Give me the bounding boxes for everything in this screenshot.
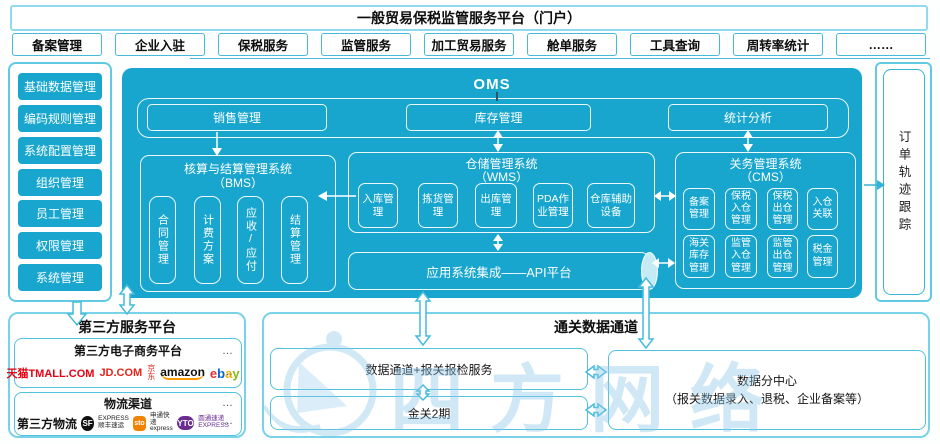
sidebar-item-organization[interactable]: 组织管理: [18, 169, 102, 196]
order-tracking-label: 订单轨迹跟踪: [883, 69, 925, 295]
bms-box: 核算与结算管理系统 （BMS） 合同管理 计费方案 应收/应付 结算管理: [140, 155, 336, 292]
menu-item-enterprise-entry[interactable]: 企业入驻: [115, 33, 205, 56]
node-sales-mgmt: 销售管理: [147, 104, 327, 131]
admin-sidebar: 基础数据管理 编码规则管理 系统配置管理 组织管理 员工管理 权限管理 系统管理: [8, 62, 112, 302]
node-pda-operation: PDA作业管理: [533, 183, 573, 228]
bms-title-line1: 核算与结算管理系统: [141, 162, 335, 176]
tmall-logo: 天猫TMALL.COM: [6, 365, 94, 381]
node-settlement-mgmt: 结算管理: [281, 196, 308, 284]
node-inventory-mgmt: 库存管理: [406, 104, 591, 131]
node-statistics-analysis: 统计分析: [668, 104, 828, 131]
menu-item-turnover-stats[interactable]: 周转率统计: [733, 33, 823, 56]
third-party-panel: 第三方服务平台 第三方电子商务平台 … 天猫TMALL.COM JD.COM 京…: [8, 312, 246, 438]
menu-item-processing-trade[interactable]: 加工贸易服务: [424, 33, 514, 56]
ecommerce-more-dots: …: [222, 345, 234, 357]
portal-title: 一般贸易保税监管服务平台（门户）: [357, 8, 581, 28]
sidebar-item-employee[interactable]: 员工管理: [18, 200, 102, 227]
data-subcenter-box: 数据分中心 （报关数据录入、退税、企业备案等）: [608, 350, 926, 430]
cms-title-line2: （CMS）: [676, 170, 855, 184]
sto-express-text: 申通快递express: [150, 413, 173, 433]
amazon-logo: amazon: [160, 366, 205, 380]
menu-item-bonded-service[interactable]: 保税服务: [218, 33, 308, 56]
bms-title-line2: （BMS）: [141, 176, 335, 190]
menu-item-supervision-service[interactable]: 监管服务: [321, 33, 411, 56]
node-billing-plan: 计费方案: [194, 196, 221, 284]
menu-item-manifest-service[interactable]: 舱单服务: [527, 33, 617, 56]
api-platform-label: 应用系统集成——API平台: [426, 262, 571, 281]
golden-customs-box: 金关2期: [270, 396, 588, 430]
jd-logo: JD.COM: [99, 367, 142, 379]
node-warehouse-aux-equipment: 仓库辅助设备: [587, 183, 635, 228]
node-outbound-mgmt: 出库管理: [475, 183, 517, 228]
oms-block: OMS 销售管理 库存管理 统计分析 核算与结算管理系统 （BMS） 合同管理 …: [122, 68, 862, 298]
logistics-more-dots: …: [222, 397, 234, 409]
ecommerce-logos-more-dots: …: [222, 366, 234, 378]
ecommerce-title: 第三方电子商务平台: [15, 342, 241, 359]
third-party-logistics-label: 第三方物流: [17, 415, 77, 432]
sidebar-item-system[interactable]: 系统管理: [18, 264, 102, 291]
ecommerce-logos: 天猫TMALL.COM JD.COM 京东 amazon ebay: [17, 362, 229, 384]
node-warehouse-link: 入仓关联: [807, 188, 838, 230]
oms-title: OMS: [122, 76, 862, 93]
node-supervised-inbound: 监管入仓管理: [725, 235, 757, 278]
node-inbound-mgmt: 入库管理: [358, 183, 398, 228]
customs-channel-title: 通关数据通道: [264, 317, 928, 337]
data-channel-box: 数据通道+报关报检服务: [270, 348, 588, 390]
sf-express-text: EXPRESS顺丰速运: [98, 416, 129, 430]
jd-cn-label: 京东: [147, 365, 155, 381]
node-bonded-outbound: 保税出仓管理: [767, 188, 798, 230]
logistics-logos-more-dots: …: [222, 415, 234, 427]
menu-item-filing[interactable]: 备案管理: [12, 33, 102, 56]
menu-item-more[interactable]: ……: [836, 33, 926, 56]
data-subcenter-label: 数据分中心 （报关数据录入、退税、企业备案等）: [609, 351, 925, 429]
api-platform-bar: 应用系统集成——API平台: [348, 252, 650, 290]
order-tracking-panel: 订单轨迹跟踪: [875, 62, 932, 302]
sto-express-logo: sto: [133, 416, 146, 431]
sidebar-item-coding-rules[interactable]: 编码规则管理: [18, 105, 102, 132]
sidebar-item-base-data[interactable]: 基础数据管理: [18, 73, 102, 100]
api-cylinder-cap: [641, 252, 658, 290]
node-tax-mgmt: 税金管理: [807, 235, 838, 278]
ecommerce-box: 第三方电子商务平台 … 天猫TMALL.COM JD.COM 京东 amazon…: [14, 338, 242, 388]
golden-customs-label: 金关2期: [271, 397, 587, 429]
menu-divider: [190, 58, 930, 59]
node-bonded-inbound: 保税入仓管理: [725, 188, 757, 230]
menu-item-tool-query[interactable]: 工具查询: [630, 33, 720, 56]
top-menu: 备案管理 企业入驻 保税服务 监管服务 加工贸易服务 舱单服务 工具查询 周转率…: [12, 33, 926, 56]
third-party-title: 第三方服务平台: [10, 317, 244, 337]
page: 一般贸易保税监管服务平台（门户） 备案管理 企业入驻 保税服务 监管服务 加工贸…: [0, 0, 940, 444]
node-customs-inventory: 海关库存管理: [683, 235, 715, 278]
logistics-logos: 第三方物流 SF EXPRESS顺丰速运 sto 申通快递express YTO…: [17, 412, 229, 434]
node-contract-mgmt: 合同管理: [149, 196, 176, 284]
data-channel-label: 数据通道+报关报检服务: [271, 349, 587, 389]
node-cms-filing: 备案管理: [683, 188, 715, 230]
logistics-title: 物流渠道: [15, 395, 241, 412]
portal-title-bar: 一般贸易保税监管服务平台（门户）: [10, 5, 928, 31]
sidebar-item-system-config[interactable]: 系统配置管理: [18, 137, 102, 164]
customs-channel-panel: 通关数据通道 数据通道+报关报检服务 金关2期 数据分中心 （报关数据录入、退税…: [262, 312, 930, 438]
node-supervised-outbound: 监管出仓管理: [767, 235, 798, 278]
logistics-box: 物流渠道 … 第三方物流 SF EXPRESS顺丰速运 sto 申通快递expr…: [14, 392, 242, 436]
sf-express-logo: SF: [81, 416, 94, 431]
yto-express-logo: YTO: [177, 416, 195, 430]
node-picking-mgmt: 拣货管理: [418, 183, 458, 228]
sidebar-item-permission[interactable]: 权限管理: [18, 232, 102, 259]
node-receivable-payable: 应收/应付: [237, 196, 264, 284]
